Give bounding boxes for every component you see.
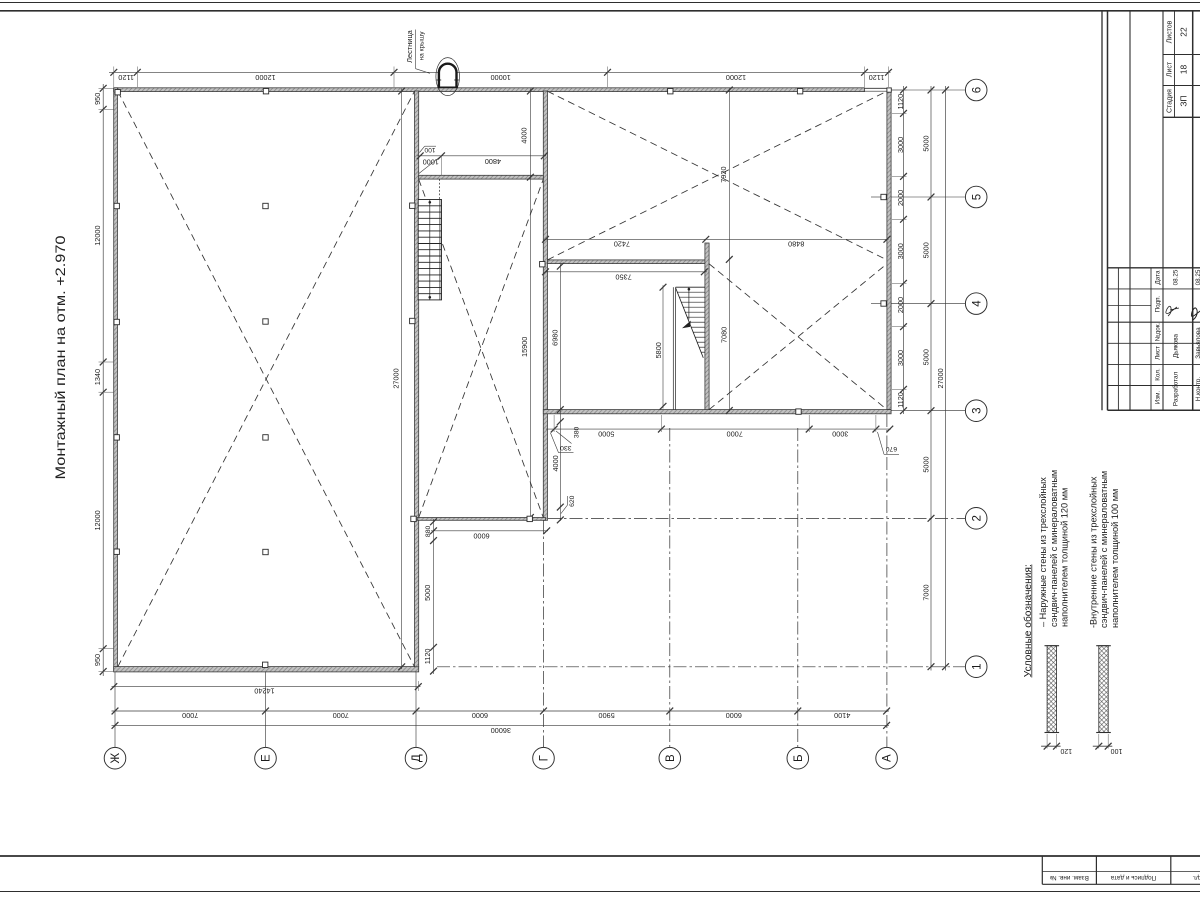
- svg-text:на крышу: на крышу: [419, 31, 426, 61]
- svg-text:3000: 3000: [896, 243, 905, 259]
- svg-text:27000: 27000: [936, 368, 945, 388]
- svg-text:7350: 7350: [615, 272, 631, 281]
- svg-text:880: 880: [425, 526, 432, 538]
- svg-text:120: 120: [1060, 747, 1072, 754]
- svg-text:5800: 5800: [654, 342, 663, 358]
- svg-text:2: 2: [971, 515, 983, 521]
- svg-text:7080: 7080: [719, 327, 728, 343]
- svg-text:100: 100: [1111, 747, 1123, 754]
- svg-text:6: 6: [971, 87, 983, 93]
- svg-text:5000: 5000: [922, 135, 931, 151]
- svg-text:1120: 1120: [896, 94, 905, 110]
- svg-text:-Внутренние стены из трехслойн: -Внутренние стены из трехслойных: [1089, 476, 1099, 628]
- svg-text:5000: 5000: [922, 242, 931, 258]
- svg-text:100: 100: [424, 146, 435, 153]
- svg-text:08.25: 08.25: [1172, 269, 1179, 285]
- svg-text:380: 380: [574, 427, 581, 439]
- svg-text:7000: 7000: [727, 429, 743, 438]
- svg-text:Ж: Ж: [110, 753, 122, 764]
- svg-text:5000: 5000: [423, 585, 432, 601]
- svg-text:5000: 5000: [598, 429, 614, 438]
- svg-text:670: 670: [886, 445, 898, 452]
- svg-text:5000: 5000: [922, 349, 931, 365]
- svg-text:3: 3: [971, 407, 983, 413]
- svg-text:Стадия: Стадия: [1166, 89, 1173, 113]
- svg-text:Г: Г: [539, 754, 551, 761]
- svg-text:ЗП: ЗП: [1179, 95, 1189, 106]
- svg-text:4100: 4100: [834, 711, 850, 720]
- svg-text:Завьялова: Завьялова: [1195, 327, 1200, 359]
- svg-text:22: 22: [1179, 27, 1189, 37]
- svg-text:1: 1: [971, 663, 983, 669]
- svg-text:– Наружные стены из трехслойны: – Наружные стены из трехслойных: [1038, 477, 1048, 627]
- svg-text:1120: 1120: [118, 73, 134, 82]
- svg-text:7000: 7000: [922, 584, 931, 600]
- svg-text:А: А: [882, 754, 894, 762]
- svg-text:12000: 12000: [726, 73, 746, 82]
- svg-text:4800: 4800: [485, 157, 501, 166]
- svg-text:12000: 12000: [255, 73, 275, 82]
- svg-text:1120: 1120: [869, 73, 885, 82]
- svg-text:Лестница: Лестница: [405, 29, 414, 62]
- svg-text:Взам. инв. №: Взам. инв. №: [1050, 874, 1089, 881]
- svg-text:Д: Д: [411, 754, 423, 762]
- svg-text:330: 330: [560, 444, 572, 451]
- svg-text:Н.контр.: Н.контр.: [1195, 377, 1200, 401]
- svg-text:3000: 3000: [832, 429, 848, 438]
- svg-text:7000: 7000: [333, 711, 349, 720]
- svg-text:Е: Е: [261, 754, 273, 762]
- svg-text:18: 18: [1179, 65, 1189, 75]
- svg-text:сэндвич-панелей с минераловатн: сэндвич-панелей с минераловатным: [1049, 470, 1059, 627]
- svg-text:Б: Б: [793, 754, 805, 762]
- svg-text:620: 620: [569, 495, 576, 507]
- svg-text:12000: 12000: [93, 225, 102, 245]
- svg-text:Подпись и дата: Подпись и дата: [1110, 874, 1156, 881]
- svg-text:Монтажный план на отм. +2.970: Монтажный план на отм. +2.970: [53, 236, 68, 480]
- svg-text:В: В: [665, 754, 677, 762]
- svg-text:Изм.: Изм.: [1154, 391, 1161, 405]
- svg-text:5900: 5900: [598, 711, 614, 720]
- svg-text:3000: 3000: [896, 137, 905, 153]
- svg-text:1120: 1120: [423, 649, 432, 665]
- svg-text:36000: 36000: [491, 726, 511, 735]
- svg-text:1340: 1340: [93, 369, 102, 385]
- svg-text:5: 5: [971, 194, 983, 200]
- svg-text:Дьякова: Дьякова: [1172, 333, 1179, 358]
- svg-text:10000: 10000: [491, 73, 511, 82]
- svg-text:08.25: 08.25: [1195, 269, 1200, 285]
- svg-text:6000: 6000: [472, 711, 488, 720]
- svg-text:Лист: Лист: [1154, 346, 1161, 360]
- svg-text:4000: 4000: [519, 127, 528, 143]
- svg-text:4000: 4000: [551, 455, 560, 471]
- svg-text:2000: 2000: [896, 190, 905, 206]
- svg-text:сэндвич-панелей с минераловатн: сэндвич-панелей с минераловатным: [1099, 471, 1109, 628]
- svg-text:Разработал: Разработал: [1171, 372, 1179, 407]
- svg-text:Инв. № подл.: Инв. № подл.: [1192, 874, 1200, 881]
- svg-text:6000: 6000: [726, 711, 742, 720]
- svg-text:Условные обозначения:: Условные обозначения:: [1022, 564, 1034, 677]
- svg-text:1120: 1120: [896, 392, 905, 408]
- svg-text:8480: 8480: [788, 239, 804, 248]
- svg-text:7920: 7920: [719, 166, 728, 182]
- svg-text:№док.: №док.: [1154, 323, 1161, 342]
- svg-text:Дата: Дата: [1154, 270, 1161, 284]
- svg-text:7000: 7000: [182, 711, 198, 720]
- svg-text:Подп.: Подп.: [1154, 295, 1161, 312]
- svg-text:12000: 12000: [93, 510, 102, 530]
- svg-text:4: 4: [971, 300, 983, 307]
- svg-text:27000: 27000: [392, 368, 401, 388]
- svg-text:14240: 14240: [254, 687, 274, 696]
- svg-text:Листов: Листов: [1166, 20, 1173, 43]
- svg-text:Кол.: Кол.: [1154, 368, 1161, 381]
- svg-text:950: 950: [93, 93, 102, 105]
- svg-text:3000: 3000: [896, 350, 905, 366]
- svg-text:наполнителем толщиной 120 мм: наполнителем толщиной 120 мм: [1060, 488, 1070, 627]
- svg-text:950: 950: [93, 654, 102, 666]
- svg-text:наполнителем толщиной 100 мм: наполнителем толщиной 100 мм: [1110, 489, 1120, 628]
- svg-text:7420: 7420: [614, 239, 630, 248]
- svg-text:Лист: Лист: [1166, 61, 1173, 77]
- svg-text:2000: 2000: [896, 297, 905, 313]
- svg-text:1000: 1000: [423, 157, 439, 166]
- svg-text:15900: 15900: [520, 337, 529, 357]
- svg-text:6980: 6980: [550, 330, 559, 346]
- svg-text:5000: 5000: [922, 456, 931, 472]
- svg-text:6000: 6000: [473, 531, 489, 540]
